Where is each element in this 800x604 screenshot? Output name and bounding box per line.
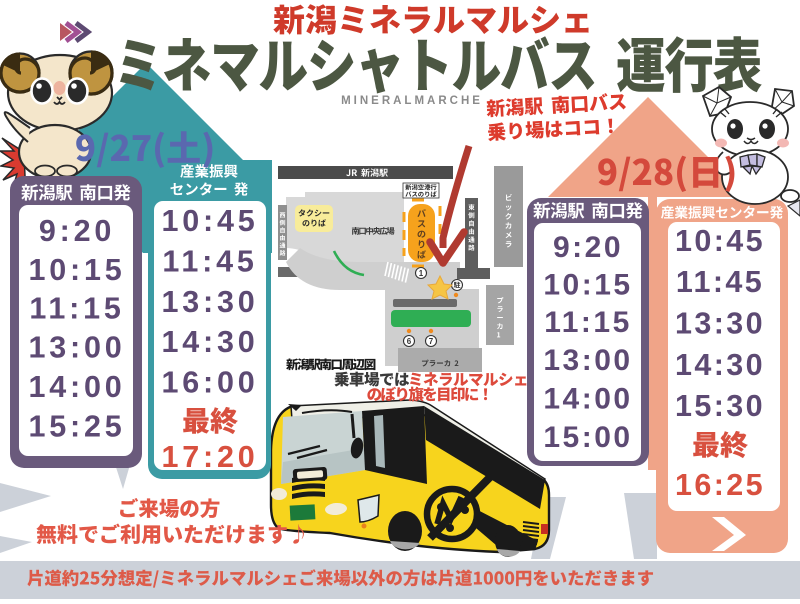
svg-text:13:00: 13:00 — [543, 344, 632, 377]
svg-text:15:30: 15:30 — [675, 389, 765, 423]
svg-text:15:00: 15:00 — [543, 421, 632, 454]
svg-text:9:20: 9:20 — [553, 231, 623, 264]
svg-text:17:20: 17:20 — [161, 440, 258, 474]
svg-text:16:00: 16:00 — [161, 366, 258, 400]
svg-text:10:15: 10:15 — [543, 269, 632, 302]
svg-text:11:15: 11:15 — [544, 306, 632, 339]
svg-text:11:15: 11:15 — [29, 292, 124, 326]
svg-text:9:20: 9:20 — [39, 214, 115, 248]
svg-text:7: 7 — [429, 337, 434, 346]
svg-text:16:25: 16:25 — [675, 468, 765, 502]
svg-text:11:45: 11:45 — [676, 265, 764, 299]
svg-text:14:30: 14:30 — [675, 348, 765, 382]
svg-text:10:45: 10:45 — [161, 204, 258, 238]
svg-text:14:30: 14:30 — [161, 325, 258, 359]
svg-text:10:45: 10:45 — [675, 224, 765, 258]
svg-text:6: 6 — [407, 337, 412, 346]
svg-text:MINERALMARCHE: MINERALMARCHE — [341, 95, 483, 107]
svg-text:15:25: 15:25 — [28, 410, 125, 444]
svg-text:10:15: 10:15 — [28, 253, 125, 287]
svg-text:1: 1 — [419, 269, 424, 278]
svg-text:13:00: 13:00 — [28, 331, 125, 365]
svg-text:14:00: 14:00 — [543, 383, 632, 416]
svg-text:14:00: 14:00 — [28, 370, 125, 404]
svg-text:13:30: 13:30 — [161, 285, 258, 319]
svg-text:11:45: 11:45 — [162, 245, 257, 279]
svg-text:13:30: 13:30 — [675, 307, 765, 341]
